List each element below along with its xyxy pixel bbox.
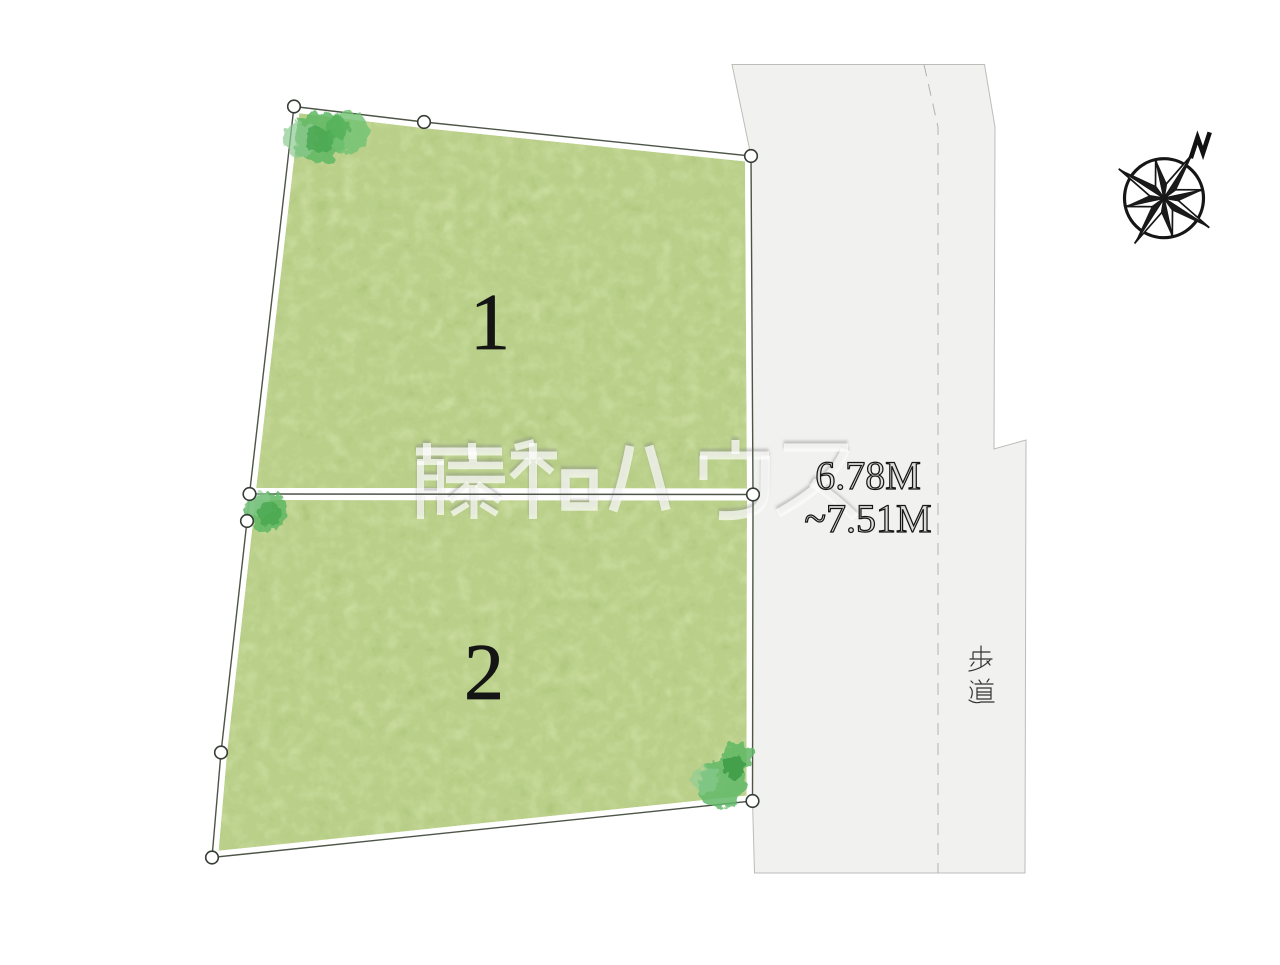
- svg-text:1: 1: [470, 279, 510, 367]
- svg-text:2: 2: [464, 629, 504, 717]
- svg-text:~7.51M: ~7.51M: [804, 496, 931, 541]
- svg-text:6.78M: 6.78M: [815, 453, 921, 498]
